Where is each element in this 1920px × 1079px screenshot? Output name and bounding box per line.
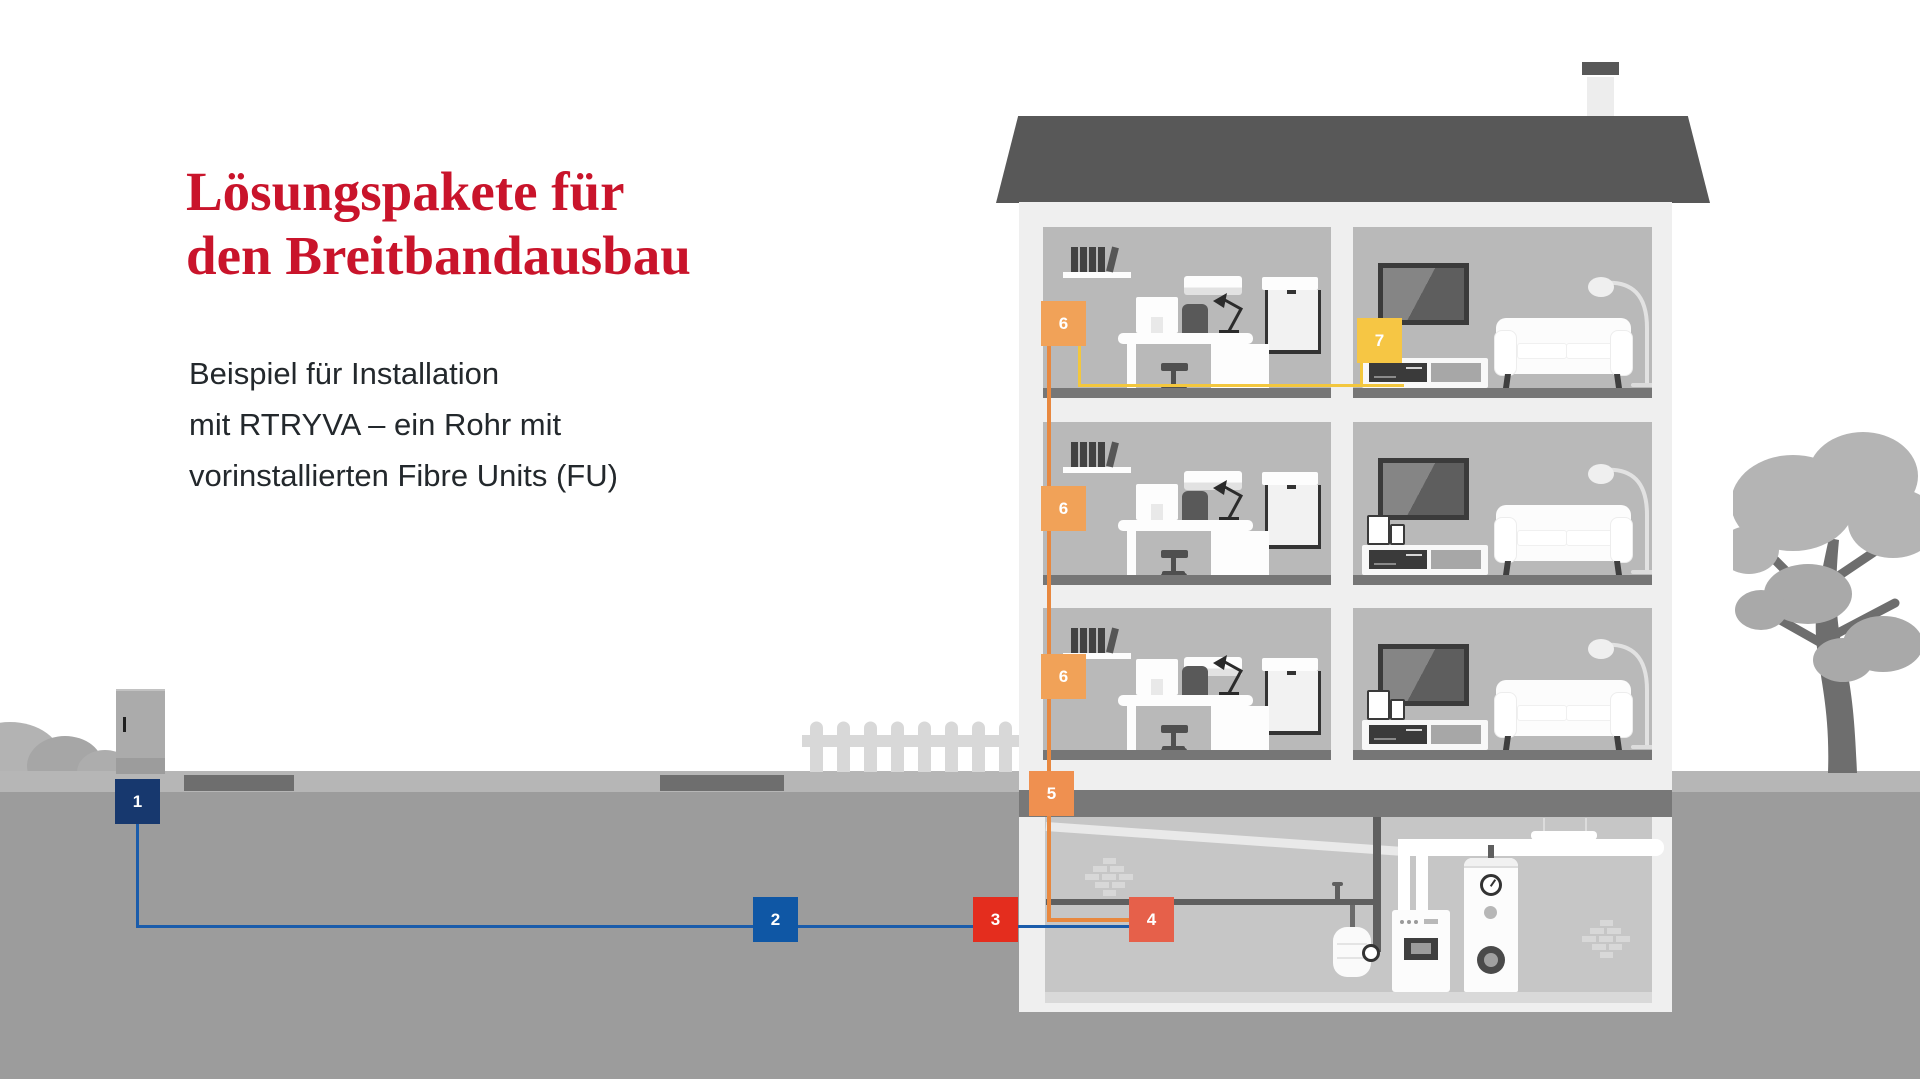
flipchart-clamp <box>1287 290 1296 294</box>
living-room-floor1 <box>1353 608 1652 760</box>
title-line-1: Lösungspakete für <box>186 160 691 224</box>
desk-cabinet <box>1211 706 1269 750</box>
tv <box>1378 458 1469 520</box>
smartphone <box>1390 699 1405 720</box>
riser-cable-vertical <box>1047 340 1051 921</box>
lamp-wire <box>1543 818 1545 831</box>
office-chair-seat <box>1161 725 1188 733</box>
marker-5: 5 <box>1029 771 1074 816</box>
wall-shelf <box>1063 467 1131 473</box>
marker-6-floor1: 6 <box>1041 654 1086 699</box>
boiler-vent <box>1424 919 1438 924</box>
computer-monitor <box>1136 297 1178 333</box>
flipchart-board <box>1265 290 1321 354</box>
living-room-floor3 <box>1353 227 1652 398</box>
sofa-cushion <box>1517 530 1567 546</box>
wall-shelf <box>1063 272 1131 278</box>
ground-floor-slab <box>1019 790 1672 817</box>
marker-6-label: 6 <box>1059 314 1068 334</box>
binder <box>1071 247 1078 272</box>
monitor-stand <box>1151 679 1163 695</box>
street-cabinet <box>116 689 165 774</box>
marker-2: 2 <box>753 897 798 942</box>
office-room-floor2 <box>1043 422 1331 585</box>
marker-4-label: 4 <box>1147 910 1156 930</box>
av-receiver <box>1369 725 1427 744</box>
apartment-cable-riser <box>1360 361 1363 387</box>
ceiling-lamp <box>1531 831 1597 840</box>
tv <box>1378 263 1469 325</box>
tv-lowboard <box>1362 720 1488 750</box>
basement-floor <box>1045 992 1652 1003</box>
computer-monitor <box>1136 484 1178 520</box>
binder <box>1080 247 1087 272</box>
av-receiver <box>1369 550 1427 569</box>
floor-slab <box>1353 388 1652 398</box>
floor-lamp <box>1581 635 1652 750</box>
heater-pipe <box>1488 845 1494 858</box>
sofa-cushion <box>1517 343 1567 359</box>
roof <box>996 116 1710 203</box>
tv-screen <box>1383 268 1464 320</box>
flipchart-board <box>1265 485 1321 549</box>
vessel-seam <box>1337 943 1367 945</box>
floor-slab <box>1043 575 1331 585</box>
binder <box>1098 247 1105 272</box>
garden-fence <box>802 718 1026 772</box>
sofa-leg <box>1503 561 1511 575</box>
desk-lamp <box>1211 291 1247 333</box>
boiler-light <box>1407 920 1411 924</box>
marker-5-label: 5 <box>1047 784 1056 804</box>
office-chair-back <box>1182 666 1208 696</box>
lowboard-compartment <box>1431 363 1481 382</box>
boiler-flue-pipe <box>1398 845 1410 913</box>
pavement-segment <box>660 775 784 791</box>
pipe-valve-knob <box>1332 882 1343 886</box>
office-room-floor1 <box>1043 608 1331 760</box>
street-cabinet-handle <box>123 717 126 732</box>
flipchart-board <box>1265 671 1321 735</box>
tv <box>1378 644 1469 706</box>
binder <box>1089 628 1096 653</box>
office-chair-back <box>1182 491 1208 521</box>
chimney-cap <box>1582 62 1619 75</box>
desk <box>1118 333 1253 344</box>
flipchart-roll <box>1262 658 1318 671</box>
sofa-cushion <box>1517 705 1567 721</box>
office-room-floor3 <box>1043 227 1331 398</box>
computer-monitor <box>1136 659 1178 695</box>
desk-lamp <box>1211 478 1247 520</box>
flipchart-clamp <box>1287 671 1296 675</box>
thermometer-gauge <box>1480 874 1502 896</box>
desk <box>1118 695 1253 706</box>
boiler <box>1392 910 1450 992</box>
marker-6-label: 6 <box>1059 499 1068 519</box>
binder <box>1098 442 1105 467</box>
subtitle-line-2: mit RTRYVA – ein Rohr mit <box>189 399 618 450</box>
bushes <box>0 700 130 771</box>
subtitle-line-1: Beispiel für Installation <box>189 348 618 399</box>
floor-lamp <box>1581 273 1652 388</box>
desk-leg <box>1127 706 1136 750</box>
marker-3: 3 <box>973 897 1018 942</box>
floor-slab <box>1043 388 1331 398</box>
desk-leg <box>1127 531 1136 575</box>
floor-slab <box>1043 750 1331 760</box>
marker-6-floor3: 6 <box>1041 301 1086 346</box>
marker-4: 4 <box>1129 897 1174 942</box>
office-chair-back <box>1182 304 1208 334</box>
page-subtitle: Beispiel für Installation mit RTRYVA – e… <box>189 348 618 501</box>
marker-2-label: 2 <box>771 910 780 930</box>
marker-3-label: 3 <box>991 910 1000 930</box>
binder <box>1080 442 1087 467</box>
tv-screen <box>1383 463 1464 515</box>
flipchart-roll <box>1262 472 1318 485</box>
binder <box>1080 628 1087 653</box>
heater-knob <box>1484 906 1497 919</box>
water-heater <box>1464 858 1518 992</box>
boiler-display <box>1404 938 1438 960</box>
av-receiver <box>1369 363 1427 382</box>
marker-7: 7 <box>1357 318 1402 363</box>
marker-7-label: 7 <box>1375 331 1384 351</box>
floor-slab <box>1353 575 1652 585</box>
receiver-detail <box>1406 554 1422 556</box>
boiler-flue-pipe <box>1416 845 1428 913</box>
vessel-pipe <box>1350 905 1355 929</box>
monitor-stand <box>1151 317 1163 333</box>
desk <box>1118 520 1253 531</box>
sofa-arm <box>1494 330 1517 376</box>
desk-cabinet <box>1211 344 1269 388</box>
apartment-cable-run <box>1078 384 1404 387</box>
subtitle-line-3: vorinstallierten Fibre Units (FU) <box>189 450 618 501</box>
receiver-detail <box>1374 563 1396 565</box>
sofa-leg <box>1503 736 1511 750</box>
binder <box>1098 628 1105 653</box>
underground-cable-vertical <box>136 820 139 928</box>
living-room-floor2 <box>1353 422 1652 585</box>
binder <box>1071 628 1078 653</box>
office-chair-seat <box>1161 363 1188 371</box>
desk-lamp <box>1211 653 1247 695</box>
page-title: Lösungspakete für den Breitbandausbau <box>186 160 691 288</box>
lowboard-compartment <box>1431 725 1481 744</box>
ventilation-duct <box>1398 839 1664 856</box>
desk-cabinet <box>1211 531 1269 575</box>
desk-leg <box>1127 344 1136 388</box>
boiler-light <box>1400 920 1404 924</box>
brick-patch <box>1582 920 1632 958</box>
flipchart-clamp <box>1287 485 1296 489</box>
heater-port <box>1477 946 1505 974</box>
flipchart-roll <box>1262 277 1318 290</box>
boiler-screen <box>1411 943 1431 954</box>
tv-screen <box>1383 649 1464 701</box>
tablet <box>1367 515 1390 545</box>
lamp-wire <box>1585 818 1587 831</box>
pavement-segment <box>184 775 294 791</box>
marker-6-label: 6 <box>1059 667 1068 687</box>
pipe-valve <box>1335 885 1340 899</box>
infographic-canvas: Lösungspakete für den Breitbandausbau Be… <box>0 0 1920 1079</box>
street-cabinet-base <box>116 758 165 774</box>
pressure-gauge <box>1362 944 1380 962</box>
receiver-detail <box>1406 729 1422 731</box>
receiver-detail <box>1374 738 1396 740</box>
marker-6-floor2: 6 <box>1041 486 1086 531</box>
gauge-needle <box>1490 879 1496 887</box>
office-chair-post <box>1171 733 1176 747</box>
heater-port-inner <box>1484 953 1498 967</box>
receiver-detail <box>1406 367 1422 369</box>
sofa-arm <box>1494 517 1517 563</box>
office-chair-post <box>1171 371 1176 385</box>
water-heater-cap <box>1464 858 1518 868</box>
office-chair-seat <box>1161 550 1188 558</box>
binder <box>1106 442 1119 468</box>
binder <box>1071 442 1078 467</box>
brick-patch <box>1085 858 1135 896</box>
binder <box>1106 628 1119 654</box>
tablet <box>1367 690 1390 720</box>
floor-lamp <box>1581 460 1652 575</box>
lowboard-compartment <box>1431 550 1481 569</box>
sofa-arm <box>1494 692 1517 738</box>
sofa-leg <box>1503 374 1511 388</box>
boiler-light <box>1414 920 1418 924</box>
tree <box>1733 398 1920 773</box>
binder <box>1089 247 1096 272</box>
marker-1: 1 <box>115 779 160 824</box>
monitor-stand <box>1151 504 1163 520</box>
apartment-cable-drop <box>1078 343 1081 387</box>
marker-1-label: 1 <box>133 792 142 812</box>
basement-service-line <box>1046 899 1381 905</box>
receiver-detail <box>1374 376 1396 378</box>
floor-slab <box>1353 750 1652 760</box>
binder <box>1089 442 1096 467</box>
binder <box>1106 247 1119 273</box>
tv-lowboard <box>1362 545 1488 575</box>
office-chair-post <box>1171 558 1176 572</box>
title-line-2: den Breitbandausbau <box>186 224 691 288</box>
heating-pipe <box>1373 817 1381 952</box>
smartphone <box>1390 524 1405 545</box>
